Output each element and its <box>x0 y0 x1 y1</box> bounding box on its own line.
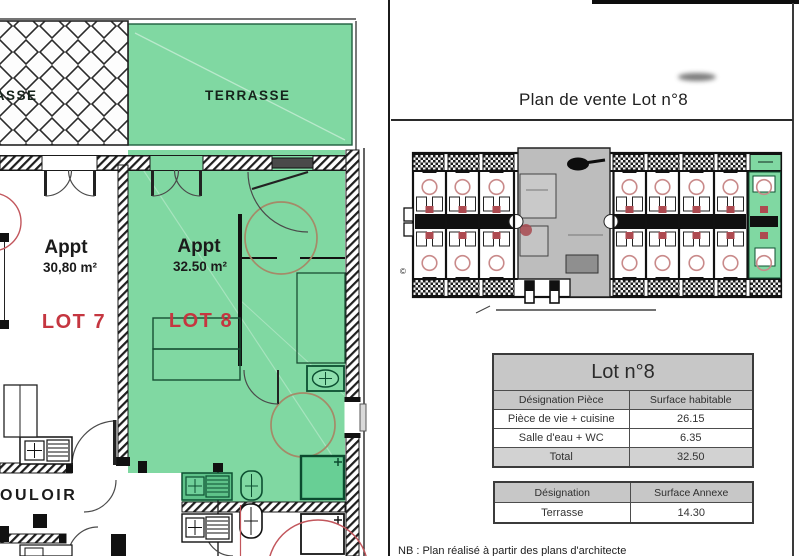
architect-footnote: NB : Plan réalisé à partir des plans d'a… <box>398 545 626 556</box>
table-row: Terrasse 14.30 <box>494 503 753 524</box>
common-core <box>518 148 610 297</box>
terrace-label: TERRASSE <box>205 88 291 103</box>
key-symbol <box>567 158 589 171</box>
washbasin <box>307 366 344 391</box>
lot7-lot-label: LOT 7 <box>42 311 106 333</box>
annex-surface-table: Désignation Surface Annexe Terrasse 14.3… <box>493 481 754 524</box>
plan-de-vente-page: TERRASSE TERRASSE <box>0 0 799 556</box>
overview-plan: © <box>398 140 793 315</box>
lot8-surface-table: Lot n°8 Désignation Pièce Surface habita… <box>492 353 754 468</box>
col-surface-annexe: Surface Annexe <box>630 482 753 503</box>
col-designation-piece: Désignation Pièce <box>493 391 629 410</box>
detail-floor-plan: TERRASSE TERRASSE <box>0 0 390 556</box>
terrace-label-clipped: TERRASSE <box>0 88 38 103</box>
lot7-type-label: Appt <box>44 237 88 258</box>
copyright-mark: © <box>400 267 406 276</box>
sliding-window <box>272 158 313 168</box>
table-row-total: Total 32.50 <box>493 448 753 468</box>
title-rule <box>391 119 793 121</box>
sales-sheet-panel: Plan de vente Lot n°8 <box>390 0 799 556</box>
lot8-type-label: Appt <box>177 236 221 257</box>
table-row: Pièce de vie + cuisine 26.15 <box>493 410 753 429</box>
table-row: Salle d'eau + WC 6.35 <box>493 429 753 448</box>
page-title: Plan de vente Lot n°8 <box>390 90 799 110</box>
kitchen-unit-lot8 <box>182 473 232 500</box>
col-designation: Désignation <box>494 482 630 503</box>
col-surface-habitable: Surface habitable <box>629 391 753 410</box>
lot8-lot-label: LOT 8 <box>169 310 233 332</box>
party-wall-lot7-lot8 <box>116 165 130 466</box>
table-title: Lot n°8 <box>493 354 753 391</box>
redaction-smudge <box>678 73 716 81</box>
terrace-hatched-neighbour: TERRASSE <box>0 21 128 145</box>
lot7-area-label: 30,80 m² <box>43 260 98 275</box>
lot8-area-label: 32.50 m² <box>173 259 228 274</box>
corridor-label: COULOIR <box>0 487 77 504</box>
top-black-bar <box>592 0 799 4</box>
